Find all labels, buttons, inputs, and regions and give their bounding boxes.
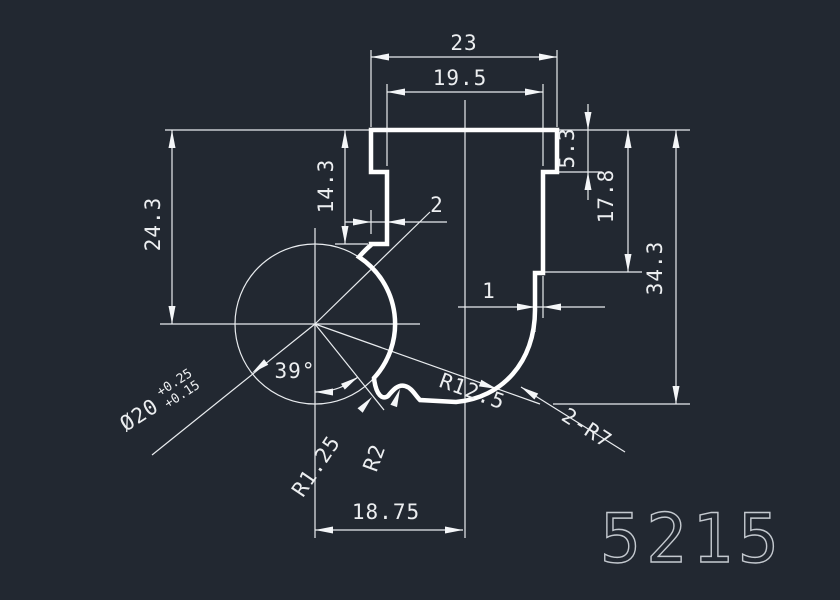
dim-arrow xyxy=(387,219,405,226)
dim-arrow xyxy=(353,219,371,226)
dim-arrow xyxy=(543,304,561,311)
dim-arrow xyxy=(342,130,349,148)
dim-text-radius-cove: R1.25 xyxy=(287,431,345,501)
die-profile-outline xyxy=(359,130,557,402)
dimension-arrows xyxy=(169,54,680,534)
dim-arrow xyxy=(358,397,373,413)
dim-arrow xyxy=(342,226,349,244)
dimension-texts: 23 19.5 5.3 17.8 34.3 24.3 14.3 2 1 18.7… xyxy=(114,31,667,524)
dim-text-wall-offset: 1 xyxy=(482,279,496,303)
dim-arrow xyxy=(585,172,592,190)
construction-lines xyxy=(152,212,625,538)
cad-drawing: 23 19.5 5.3 17.8 34.3 24.3 14.3 2 1 18.7… xyxy=(0,0,840,600)
dim-arrow xyxy=(315,527,333,534)
dim-arrow xyxy=(585,112,592,130)
dim-arrow xyxy=(673,130,680,148)
ball-diameter-callout: Ø20 +0.25 +0.15 xyxy=(114,366,203,438)
cad-viewport: 23 19.5 5.3 17.8 34.3 24.3 14.3 2 1 18.7… xyxy=(0,0,840,600)
dim-arrow xyxy=(539,54,557,61)
dim-text-right-notch-depth: 5.3 xyxy=(555,128,579,169)
dim-arrow xyxy=(169,306,176,324)
dim-text-ball-diameter: Ø20 xyxy=(116,394,163,436)
dim-arrow xyxy=(625,254,632,272)
dim-arrow xyxy=(625,130,632,148)
dim-text-radius-bump: R2 xyxy=(358,441,390,475)
dim-arrow xyxy=(525,89,543,96)
dim-arrow xyxy=(252,359,268,373)
part-number: 5215 xyxy=(600,500,784,579)
dim-arrow xyxy=(371,54,389,61)
dim-text-stem-height: 14.3 xyxy=(314,159,338,214)
dim-text-bottom-width: 18.75 xyxy=(352,500,420,524)
dim-arrow xyxy=(341,377,358,390)
dim-text-radius-corners: 2-R7 xyxy=(557,403,616,453)
dim-text-total-height: 34.3 xyxy=(643,241,667,296)
dim-text-top-width-outer: 23 xyxy=(450,31,477,55)
dim-arrow xyxy=(315,389,333,396)
dim-arrow xyxy=(673,386,680,404)
dim-arrow xyxy=(445,527,463,534)
dim-arrow xyxy=(517,304,535,311)
dim-text-radius-inner: R12.5 xyxy=(436,368,508,414)
dim-text-angle: 39° xyxy=(275,359,316,383)
dim-text-right-mid-depth: 17.8 xyxy=(594,169,618,224)
dim-text-top-width-inner: 19.5 xyxy=(433,66,488,90)
dim-arrow xyxy=(169,130,176,148)
dim-text-stem-width: 2 xyxy=(430,193,444,217)
dim-text-left-height: 24.3 xyxy=(141,197,165,252)
angle-arc xyxy=(315,377,358,392)
dim-arrow xyxy=(387,89,405,96)
dimension-lines xyxy=(165,50,690,538)
